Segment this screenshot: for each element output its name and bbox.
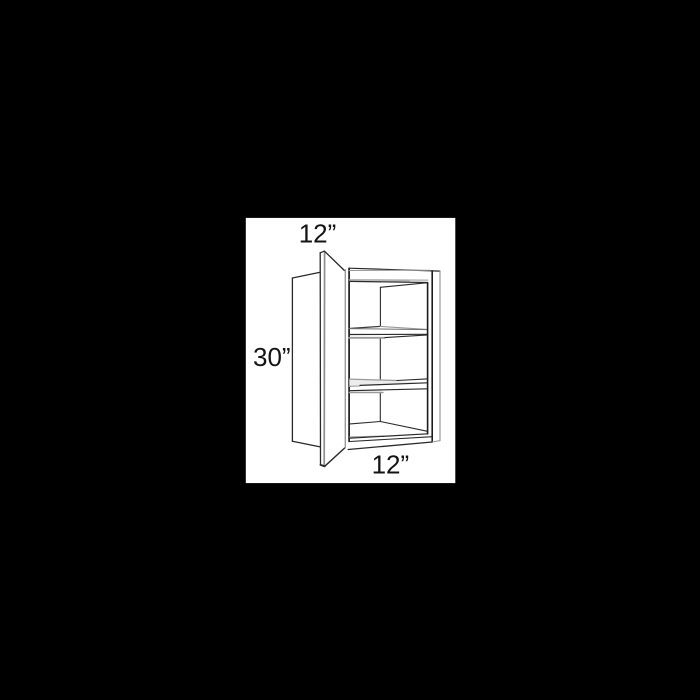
svg-text:12”: 12”	[372, 450, 410, 480]
svg-text:12”: 12”	[299, 219, 337, 249]
svg-text:30”: 30”	[253, 342, 291, 372]
